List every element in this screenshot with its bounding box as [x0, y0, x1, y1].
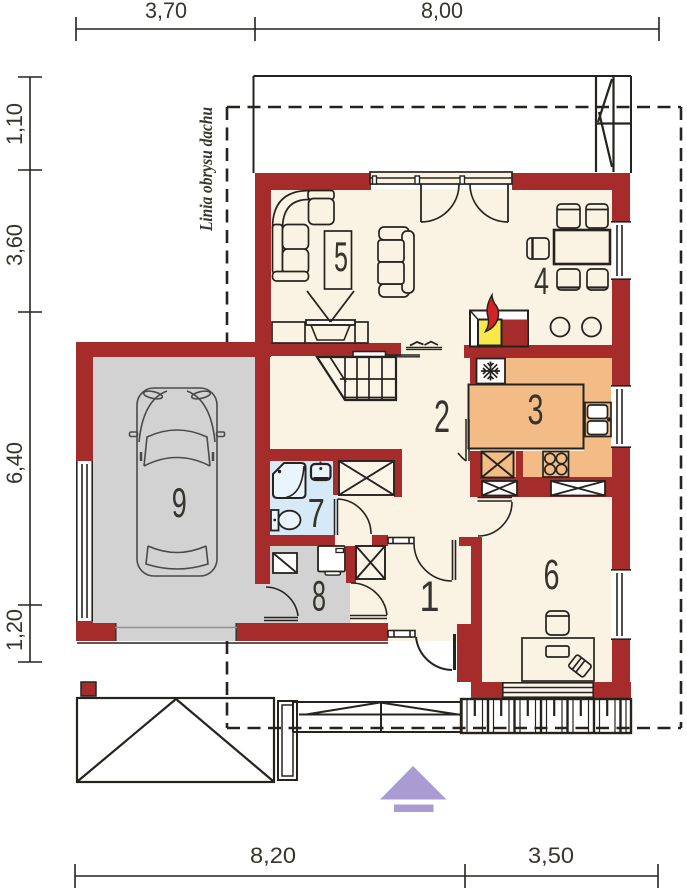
- svg-text:1,10: 1,10: [2, 103, 27, 145]
- svg-text:1: 1: [420, 573, 440, 621]
- svg-text:3,60: 3,60: [2, 224, 27, 266]
- svg-text:7: 7: [308, 490, 325, 536]
- svg-text:8,20: 8,20: [250, 843, 296, 868]
- svg-text:9: 9: [172, 479, 187, 526]
- svg-text:6,40: 6,40: [2, 442, 27, 484]
- svg-text:3,70: 3,70: [145, 0, 187, 23]
- svg-text:Linia obrysu dachu: Linia obrysu dachu: [196, 107, 216, 232]
- svg-text:8,00: 8,00: [421, 0, 463, 23]
- svg-text:3: 3: [528, 386, 544, 434]
- svg-text:8: 8: [312, 573, 326, 621]
- svg-text:1,20: 1,20: [2, 609, 27, 651]
- svg-text:2: 2: [434, 391, 450, 442]
- svg-text:6: 6: [544, 551, 560, 599]
- svg-text:5: 5: [334, 233, 348, 280]
- svg-text:3,50: 3,50: [528, 843, 574, 868]
- svg-text:4: 4: [534, 261, 549, 303]
